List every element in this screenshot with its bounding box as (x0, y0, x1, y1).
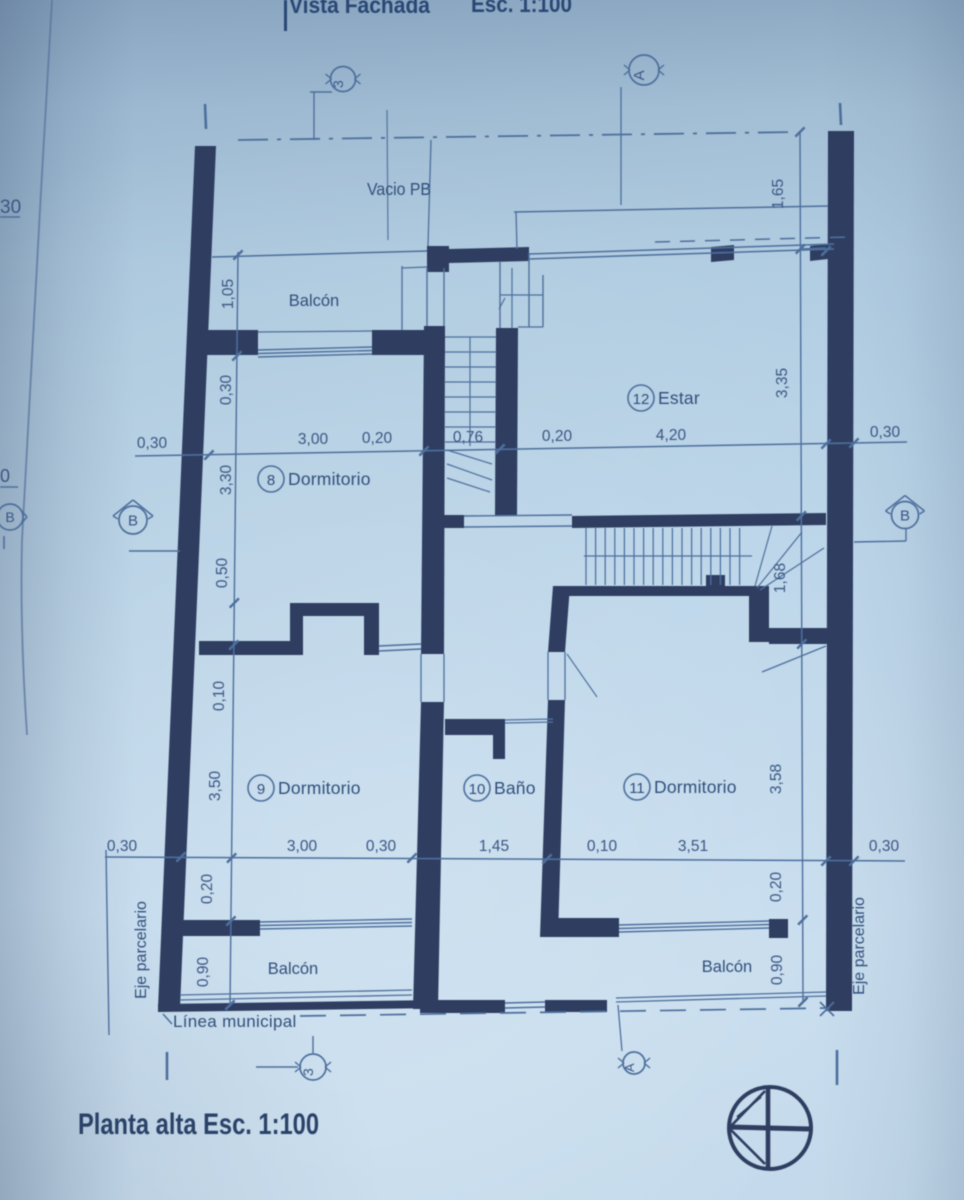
svg-text:Vacio PB: Vacio PB (367, 179, 431, 199)
svg-text:B: B (128, 512, 138, 529)
svg-text:1,68: 1,68 (772, 563, 789, 593)
svg-text:3,50: 3,50 (207, 771, 224, 802)
svg-text:1,05: 1,05 (220, 279, 237, 309)
svg-text:Esc. 1:100: Esc. 1:100 (471, 0, 572, 17)
svg-text:B: B (900, 507, 910, 524)
svg-text:11: 11 (629, 780, 645, 797)
svg-text:0,30: 0,30 (107, 838, 138, 855)
svg-text:0,10: 0,10 (587, 838, 618, 855)
svg-text:3,51: 3,51 (678, 838, 708, 855)
svg-text:Línea municipal: Línea municipal (173, 1012, 297, 1031)
svg-text:B: B (5, 509, 14, 525)
svg-text:Balcón: Balcón (268, 960, 318, 978)
svg-text:0,30: 0,30 (137, 435, 168, 452)
svg-text:9: 9 (257, 781, 265, 798)
svg-text:0,90: 0,90 (195, 957, 212, 988)
svg-text:Baño: Baño (494, 778, 536, 798)
svg-text:0: 0 (0, 466, 10, 486)
svg-text:1,45: 1,45 (479, 838, 509, 855)
svg-text:Balcón: Balcón (702, 958, 752, 976)
svg-text:Dormitorio: Dormitorio (278, 778, 361, 798)
svg-text:3,30: 3,30 (218, 465, 235, 496)
svg-text:Vista Fachada: Vista Fachada (289, 0, 430, 18)
svg-text:4,20: 4,20 (656, 427, 687, 444)
svg-text:0,50: 0,50 (214, 558, 231, 589)
svg-text:0,30: 0,30 (870, 424, 901, 441)
svg-text:3,00: 3,00 (298, 431, 329, 448)
svg-text:30: 30 (0, 197, 21, 218)
svg-text:Dormitorio: Dormitorio (288, 469, 371, 489)
svg-text:0,20: 0,20 (768, 872, 785, 903)
svg-text:3,35: 3,35 (774, 368, 791, 398)
svg-text:0,20: 0,20 (542, 428, 573, 445)
svg-text:0,30: 0,30 (869, 838, 900, 855)
svg-text:Dormitorio: Dormitorio (654, 777, 737, 797)
svg-text:0,20: 0,20 (199, 874, 216, 905)
svg-text:0,20: 0,20 (362, 430, 393, 447)
svg-text:3: 3 (300, 1068, 316, 1076)
svg-text:3,58: 3,58 (768, 764, 785, 794)
svg-text:0,30: 0,30 (218, 375, 235, 406)
svg-text:Planta alta Esc. 1:100: Planta alta Esc. 1:100 (78, 1108, 319, 1141)
svg-text:0,30: 0,30 (366, 838, 397, 855)
svg-text:A: A (631, 70, 648, 80)
svg-text:1,65: 1,65 (770, 179, 787, 209)
svg-text:Eje parcelario: Eje parcelario (133, 901, 150, 999)
svg-text:3: 3 (330, 80, 346, 88)
svg-text:0,76: 0,76 (453, 429, 483, 446)
svg-text:Estar: Estar (658, 388, 700, 408)
svg-text:Eje parcelario: Eje parcelario (851, 897, 868, 995)
svg-text:3,00: 3,00 (287, 838, 318, 855)
svg-text:Balcón: Balcón (289, 292, 339, 310)
svg-text:12: 12 (633, 391, 650, 408)
svg-text:8: 8 (267, 472, 275, 489)
svg-text:10: 10 (469, 781, 486, 798)
svg-text:0,90: 0,90 (769, 955, 786, 986)
svg-text:A: A (622, 1063, 637, 1072)
svg-text:0,10: 0,10 (211, 681, 228, 712)
